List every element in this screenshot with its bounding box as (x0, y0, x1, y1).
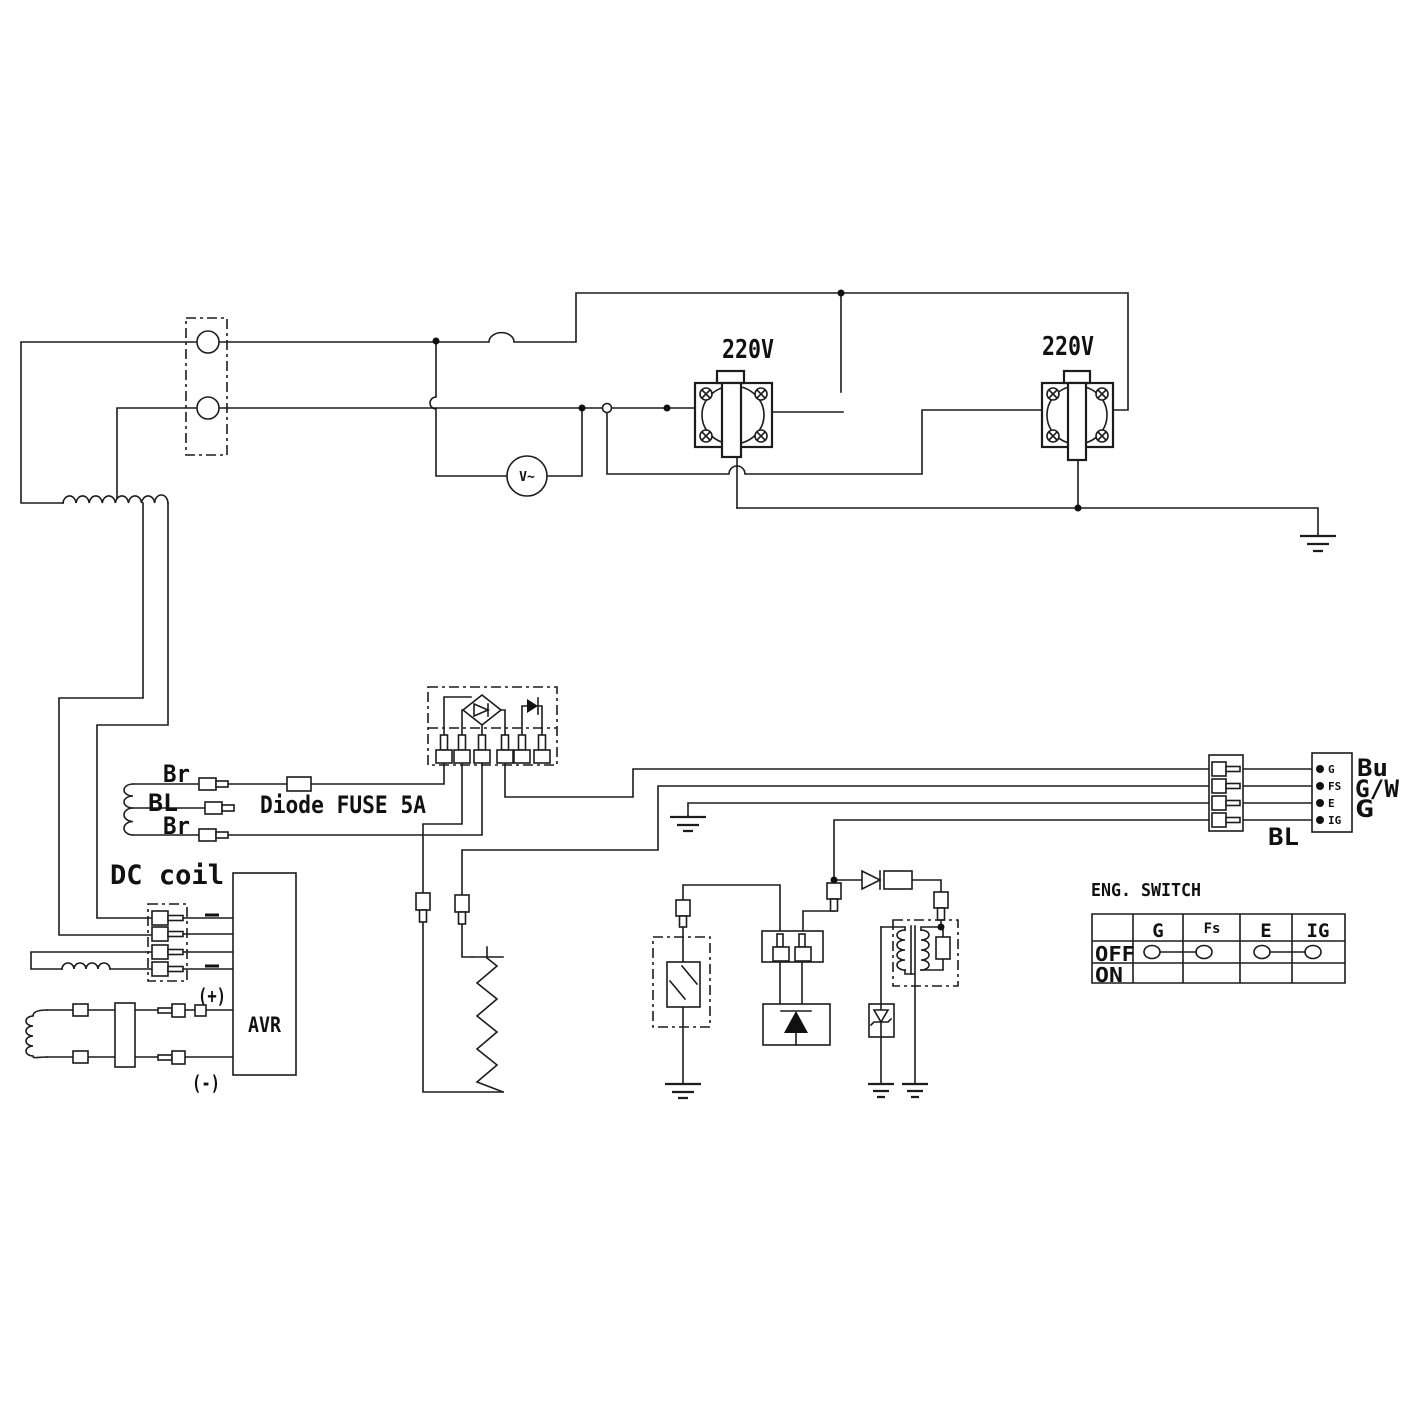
cdi-pin1 (773, 947, 789, 961)
open-terminal (603, 404, 612, 413)
ground-symbol-mains (1300, 536, 1336, 551)
wire-fs (462, 786, 1212, 957)
row-label-on: ON (1095, 963, 1123, 987)
wire-sense-loop (31, 952, 152, 969)
oil-switch-connector-tip (680, 916, 687, 927)
wire-label-br-top: Br (163, 760, 190, 788)
ig-connector (827, 883, 841, 899)
dccoil-pin1-tip (216, 781, 228, 787)
col-header-g: G (1152, 920, 1163, 942)
wire-cdi-down (780, 961, 802, 1004)
wiring-diagram-canvas: V~ 220V 220V (0, 0, 1413, 1413)
rectifier-terminals (436, 735, 550, 763)
wire-connector-out (1240, 769, 1312, 820)
avr-label: AVR (248, 1013, 281, 1037)
harness-label-bl: BL (1268, 823, 1299, 851)
pin-dot-fs (1316, 782, 1324, 790)
wire-e-ground (688, 803, 1212, 817)
avr-connector-pins (152, 911, 183, 976)
off-row-contacts (1144, 946, 1321, 959)
ground-symbol-oil-switch (665, 1084, 701, 1098)
exciter-top-pin-tip (158, 1008, 172, 1013)
cdi-box (762, 931, 823, 962)
dc-coil-winding (124, 784, 133, 835)
outlet1-plug-bar (722, 383, 741, 457)
exciter-top-pin (172, 1004, 185, 1017)
eng-switch-title: ENG. SWITCH (1091, 880, 1201, 901)
wire-dccoil-row1 (228, 763, 444, 784)
dc-coil: Br BL Br Diode FUSE 5A DC coil (110, 760, 426, 891)
eng-switch-table: ENG. SWITCH G Fs E IG OFF ON (1091, 880, 1345, 987)
coil-resistor (936, 937, 950, 959)
fuse-body (287, 777, 311, 791)
exciter-bottom-pin-tip (158, 1055, 172, 1060)
wire-ig-to-cdi (803, 911, 834, 931)
avr-body (233, 873, 296, 1075)
main-winding-coil (63, 495, 168, 503)
cdi-pin1-tip (777, 934, 783, 947)
wire-rect-t4-to-g (505, 763, 1212, 797)
generator-wiring-diagram: V~ 220V 220V (0, 0, 1413, 1413)
wire-ig (834, 820, 1212, 877)
rectifier-unit (428, 687, 557, 765)
ig-connector-tip (831, 899, 838, 911)
exciter-winding (26, 1010, 47, 1058)
outlet2-voltage-label: 220V (1042, 332, 1094, 362)
diode-icon (527, 699, 538, 713)
dccoil-pin2 (205, 802, 222, 814)
coil-connector (934, 892, 948, 908)
pin-label-e: E (1328, 797, 1335, 810)
ignition-coil (893, 920, 958, 986)
exciter-plug-block (115, 1003, 135, 1067)
dccoil-pin3-tip (216, 832, 228, 838)
pin-label-ig: IG (1328, 814, 1342, 827)
spark-left-connector (416, 893, 430, 910)
exciter-top-lug2 (195, 1005, 206, 1016)
col-header-fs: Fs (1204, 921, 1221, 937)
primary-winding (897, 930, 905, 970)
wire-ground-bus (737, 508, 1318, 536)
exciter-bottom-pin (172, 1051, 185, 1064)
pin-dot-e (1316, 799, 1324, 807)
voltmeter-label: V~ (519, 470, 535, 485)
oil-level-switch (653, 900, 710, 1027)
dc-coil-title: DC coil (110, 860, 224, 891)
wire-stator-tap (117, 408, 197, 498)
wire-live-bus (219, 293, 1128, 410)
col-header-ig: IG (1307, 920, 1330, 942)
spark-left-connector-tip (420, 910, 427, 922)
ground-symbol-e-line (670, 817, 706, 831)
ground-symbol-zener (868, 1084, 894, 1097)
pin-dot-ig (1316, 816, 1324, 824)
spark-resistance-zigzag (477, 958, 503, 1092)
wire-avr-rows (183, 918, 233, 969)
outlet1-voltage-label: 220V (722, 335, 774, 365)
spark-electrode (472, 947, 503, 957)
cdi-pin2-tip (799, 934, 805, 947)
wire-label-br-bottom: Br (163, 812, 190, 840)
oil-switch-connector (676, 900, 690, 916)
spark-plug (416, 893, 503, 1092)
fuse-label: Diode FUSE 5A (260, 791, 426, 819)
wire-outlet2-feed (607, 408, 1042, 474)
coil-connector-tip (938, 908, 945, 920)
wire-stator-to-avr-row1 (97, 503, 168, 918)
ig-diode-icon (862, 871, 880, 889)
dccoil-pin2-tip (222, 805, 234, 811)
sense-winding-coil (62, 963, 110, 969)
dccoil-pin1 (199, 778, 216, 790)
polarity-dashes (205, 915, 219, 966)
ignition-unit (762, 871, 948, 1045)
spark-right-connector (455, 895, 469, 912)
spark-right-connector-tip (459, 912, 466, 924)
outlet2-plug-cap (1064, 371, 1090, 383)
dccoil-pin3 (199, 829, 216, 841)
ground-symbol-coil (902, 1084, 928, 1097)
ig-resistor (884, 871, 912, 889)
pin-dot-g (1316, 765, 1324, 773)
col-header-e: E (1260, 920, 1271, 942)
terminal-lower (197, 397, 219, 419)
stator-winding (63, 495, 168, 503)
output-terminal-block (186, 318, 227, 455)
outlet1-plug-cap (717, 371, 744, 383)
exciter-bottom-lug (73, 1051, 88, 1063)
sense-winding (62, 963, 110, 969)
voltmeter: V~ (507, 456, 547, 496)
avr-unit: AVR (+) (-) (192, 873, 296, 1095)
pin-label-g: G (1328, 763, 1335, 776)
outlet2-plug-bar (1068, 383, 1086, 460)
outlet-220v-1: 220V (695, 335, 774, 457)
wire-color-g: G (1355, 795, 1374, 823)
avr-minus-label: (-) (192, 1071, 220, 1095)
exciter-winding-coil (26, 1010, 47, 1058)
zener-diode (869, 1004, 894, 1037)
pin-label-fs: FS (1328, 780, 1341, 793)
outlet-220v-2: 220V (1042, 332, 1113, 460)
wire-voltmeter-right (547, 408, 582, 476)
wire-stator-left-lead (21, 342, 197, 503)
engine-stop-connector: G FS E IG Bu G/W G BL (1209, 753, 1400, 851)
cdi-pin2 (795, 947, 811, 961)
secondary-winding (921, 930, 929, 970)
dc-winding-coil (124, 784, 133, 835)
exciter-top-lug (73, 1004, 88, 1016)
wire-rect-t2 (423, 763, 503, 1092)
terminal-upper (197, 331, 219, 353)
